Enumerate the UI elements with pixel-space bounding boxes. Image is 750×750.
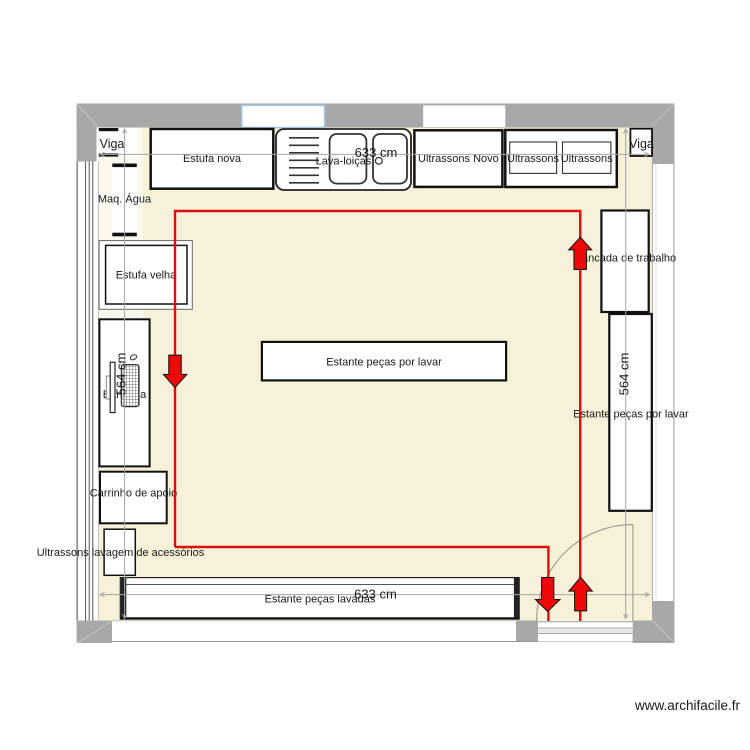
svg-text:Estante peças por lavar: Estante peças por lavar <box>326 357 442 369</box>
svg-text:Carrinho de apoio: Carrinho de apoio <box>90 487 177 499</box>
svg-text:633 cm: 633 cm <box>355 145 398 160</box>
svg-text:Viga: Viga <box>100 137 125 151</box>
svg-text:633 cm: 633 cm <box>354 587 397 602</box>
svg-text:www.archifacile.fr: www.archifacile.fr <box>634 698 741 713</box>
svg-text:Viga: Viga <box>629 137 654 151</box>
svg-text:Ultrassons lavagem de acessóri: Ultrassons lavagem de acessórios <box>37 547 205 559</box>
svg-text:Estante peças por lavar: Estante peças por lavar <box>573 409 689 421</box>
svg-text:564 cm: 564 cm <box>616 353 631 396</box>
svg-text:564 cm: 564 cm <box>114 353 129 396</box>
